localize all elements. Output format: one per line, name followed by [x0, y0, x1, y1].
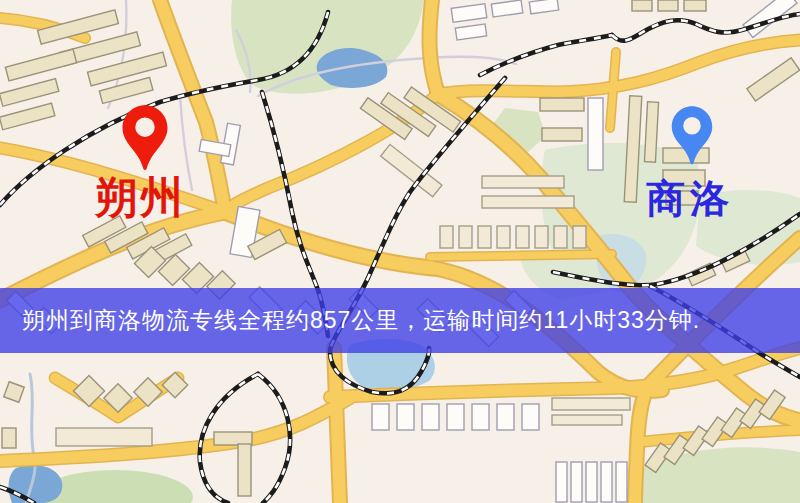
origin-pin-icon[interactable]	[119, 104, 171, 174]
map-background	[0, 0, 800, 503]
origin-city-label: 朔州	[84, 176, 196, 219]
map-screenshot: 朔州 商洛 朔州到商洛物流专线全程约857公里，运输时间约11小时33分钟.	[0, 0, 800, 503]
destination-city-label: 商洛	[634, 179, 746, 218]
route-info-text: 朔州到商洛物流专线全程约857公里，运输时间约11小时33分钟.	[22, 305, 700, 336]
destination-pin-icon[interactable]	[669, 105, 715, 168]
route-info-banner: 朔州到商洛物流专线全程约857公里，运输时间约11小时33分钟.	[0, 288, 800, 353]
